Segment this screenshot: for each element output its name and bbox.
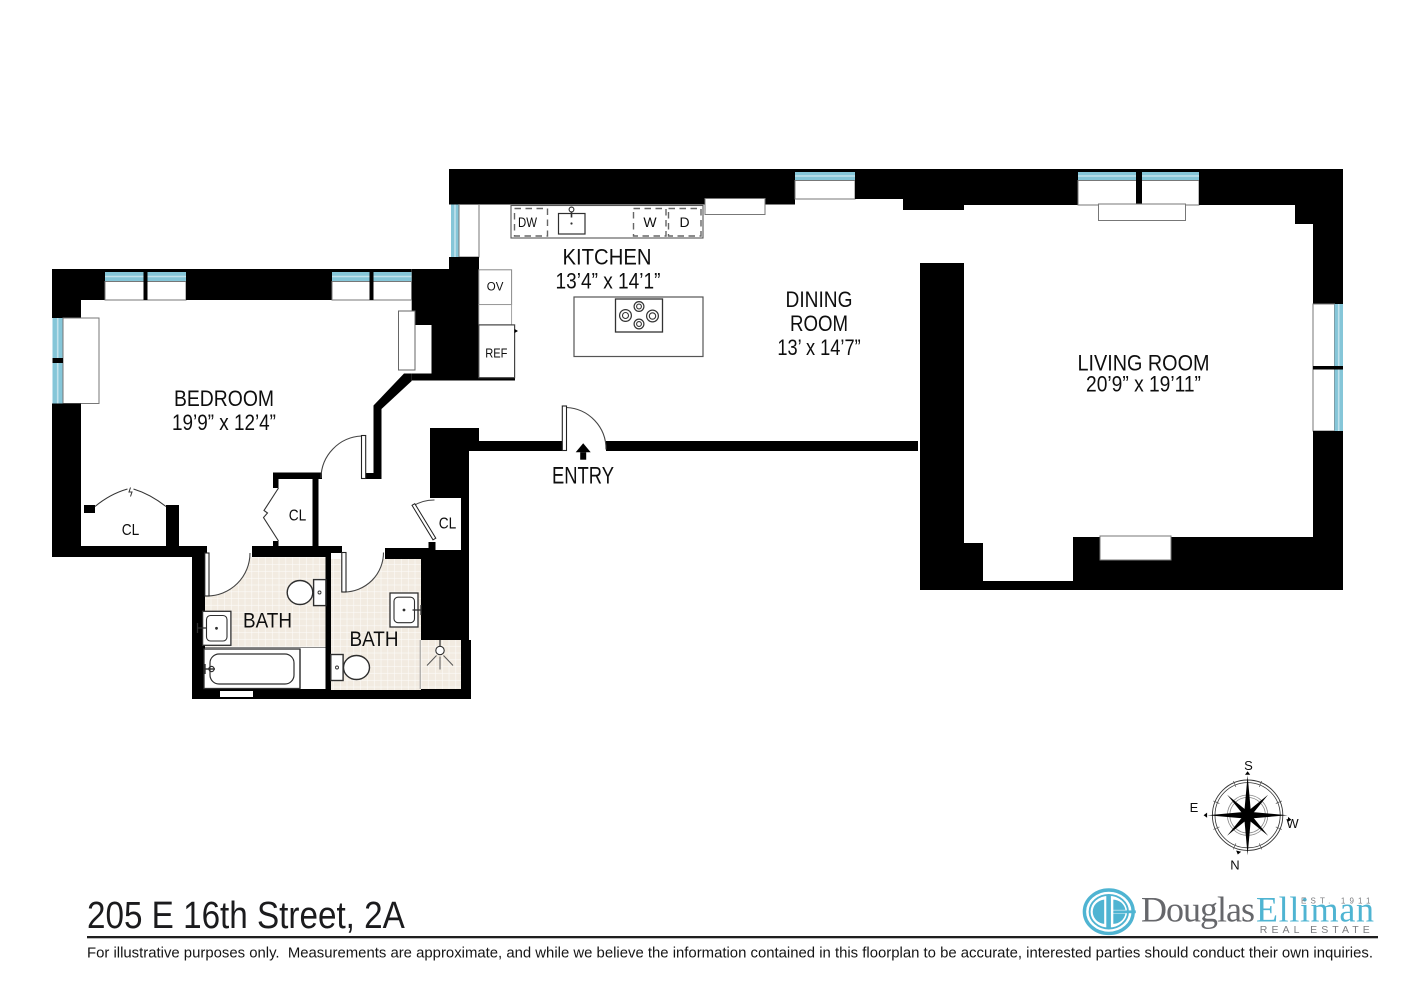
svg-text:S: S <box>1244 758 1253 773</box>
svg-text:E: E <box>1190 800 1199 815</box>
svg-text:EST. 1911: EST. 1911 <box>1301 897 1373 906</box>
svg-text:DINING: DINING <box>786 288 853 313</box>
svg-text:20’9” x 19’11”: 20’9” x 19’11” <box>1086 372 1201 397</box>
svg-text:D: D <box>679 214 689 230</box>
svg-text:CL: CL <box>289 508 306 525</box>
svg-text:REF: REF <box>485 345 507 360</box>
svg-text:ROOM: ROOM <box>790 313 848 337</box>
svg-text:CL: CL <box>439 516 456 533</box>
svg-text:DW: DW <box>518 214 537 230</box>
svg-text:REAL ESTATE: REAL ESTATE <box>1260 924 1373 936</box>
svg-text:13’4” x 14’1”: 13’4” x 14’1” <box>556 269 661 294</box>
svg-text:BATH: BATH <box>350 628 399 651</box>
svg-text:19’9” x 12’4”: 19’9” x 12’4” <box>172 411 276 436</box>
svg-text:CL: CL <box>122 522 139 539</box>
svg-text:OV: OV <box>487 282 504 294</box>
svg-text:13’ x 14’7”: 13’ x 14’7” <box>777 336 860 360</box>
svg-text:W: W <box>1286 816 1299 831</box>
svg-text:BEDROOM: BEDROOM <box>174 387 274 411</box>
svg-text:ENTRY: ENTRY <box>552 462 614 489</box>
svg-text:For illustrative purposes only: For illustrative purposes only. Measurem… <box>87 946 1373 962</box>
svg-text:Douglas: Douglas <box>1141 890 1255 930</box>
svg-text:W: W <box>643 214 657 230</box>
svg-text:KITCHEN: KITCHEN <box>563 246 652 270</box>
svg-text:205 E 16th Street, 2A: 205 E 16th Street, 2A <box>87 894 405 937</box>
svg-text:BATH: BATH <box>243 610 292 633</box>
svg-text:N: N <box>1230 858 1239 873</box>
